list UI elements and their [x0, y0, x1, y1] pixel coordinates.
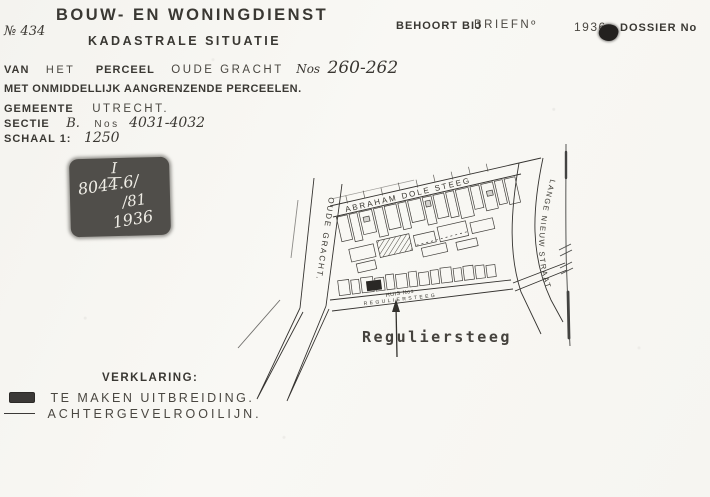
schaal-label: SCHAAL 1:	[4, 133, 71, 145]
line-swatch	[4, 413, 35, 414]
nos-abbrev: Nos	[296, 62, 320, 76]
parcel	[418, 272, 430, 286]
reguliersteeg-annotation: Reguliersteeg	[362, 328, 512, 346]
parcel	[486, 264, 496, 277]
parcel	[470, 218, 495, 234]
house-numbers: 260-262	[328, 58, 399, 78]
street-southwest-band-right	[287, 306, 329, 401]
black-parcel-swatch	[9, 392, 35, 403]
street-label-oude-gracht-text: OUDE GRACHT.	[314, 197, 336, 282]
legend-extension-label: TE MAKEN UITBREIDING.	[50, 391, 254, 405]
legend-title: VERKLARING:	[102, 372, 198, 384]
street-label-oude-gracht: OUDE GRACHT.	[314, 197, 336, 282]
quay-line	[291, 200, 298, 258]
street-southwest-extra-line	[238, 300, 280, 348]
parcel	[359, 209, 377, 234]
parcel	[421, 243, 447, 257]
schaal-line: SCHAAL 1: 1250	[4, 129, 120, 147]
street-abraham-dole-north-line	[330, 163, 519, 206]
behoort-bij-label: BEHOORT BIJ	[396, 20, 482, 32]
adjacent-parcels-line: MET ONMIDDELLIJK AANGRENZENDE PERCEELEN.	[4, 83, 302, 95]
street-label-lange-nieuw: LANGE NIEUW STRAAT	[537, 179, 557, 291]
page-title: BOUW- EN WONINGDIENST	[56, 6, 328, 25]
schaal-value: 1250	[84, 130, 120, 146]
parcel	[349, 244, 376, 262]
legend-item-rear-line: ACHTERGEVELROOILIJN.	[4, 405, 262, 423]
van-label: VAN	[4, 64, 29, 76]
parcel	[446, 191, 460, 218]
parcel	[338, 279, 351, 295]
parcel	[408, 198, 426, 222]
dossier-no-label: DOSSIER No	[620, 22, 697, 34]
registry-stamp: I 8044.6/ /81 1936	[69, 157, 171, 238]
parcel-row-north	[332, 157, 521, 245]
parcel	[413, 231, 436, 246]
parcel	[475, 265, 486, 279]
parcel-line: VAN HET PERCEEL OUDE GRACHT Nos 260-262	[4, 58, 398, 78]
parcel-band-middle	[348, 215, 497, 274]
street-label-lange-nieuw-text: LANGE NIEUW STRAAT	[537, 179, 557, 291]
sectie-numbers: 4031-4032	[129, 115, 205, 131]
parcel	[395, 273, 408, 288]
parcel-detail	[425, 200, 431, 207]
scanned-document: OUDE GRACHT. ABRAHAM DOLE STEEG LANGE NI…	[0, 0, 710, 497]
parcel	[453, 268, 463, 282]
parcel	[349, 213, 363, 242]
brief-no-label: BRIEFNº	[474, 19, 538, 31]
parcel-detail	[486, 190, 493, 196]
parcel-detail	[363, 216, 370, 222]
parcel-hatched	[377, 234, 413, 258]
parcel	[373, 207, 388, 237]
street-southwest-band-left	[257, 308, 303, 399]
stamp-year: 1936	[111, 206, 154, 231]
parcel-extension-black	[366, 280, 382, 292]
street-corner-line	[519, 158, 541, 163]
crease-thick-bottom	[568, 292, 569, 338]
parcel	[430, 269, 440, 284]
parcel	[440, 267, 453, 283]
street-oude-gracht-west-line	[300, 178, 314, 308]
parcel	[351, 279, 361, 294]
legend-rear-line-label: ACHTERGEVELROOILIJN.	[47, 407, 261, 421]
parcel	[456, 238, 478, 250]
parcel	[356, 260, 377, 273]
het-label: HET	[46, 64, 76, 76]
parcel	[463, 265, 475, 280]
page-subtitle: KADASTRALE SITUATIE	[88, 34, 281, 48]
paper-crease	[559, 144, 573, 346]
street-name: OUDE GRACHT	[171, 64, 283, 76]
parcel	[494, 180, 507, 205]
parcel	[385, 274, 395, 290]
parcel	[455, 187, 474, 218]
parcel	[408, 271, 418, 287]
perceel-label: PERCEEL	[96, 64, 155, 76]
parcel	[398, 202, 412, 230]
document-number: № 434	[4, 24, 45, 39]
